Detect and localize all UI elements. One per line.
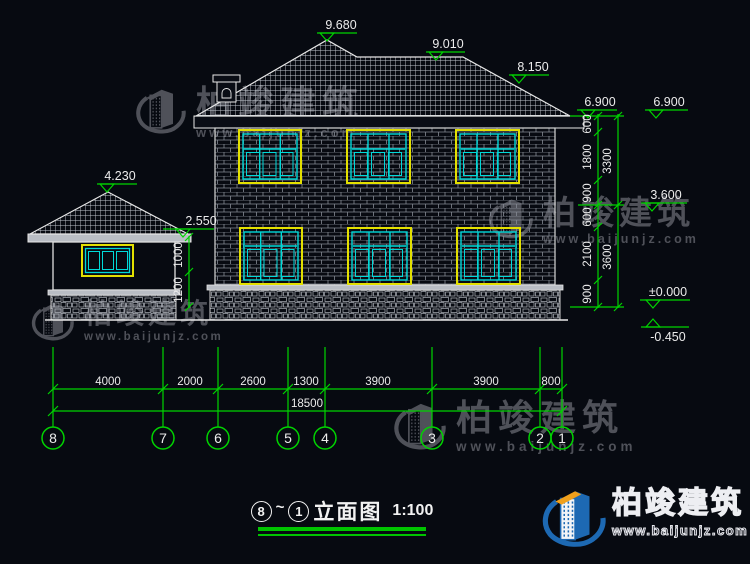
garage-dim-chain <box>185 233 193 311</box>
title-name: 立面图 <box>313 496 382 526</box>
cad-elevation-screenshot: 柏竣建筑 www.baijunjz.com 柏竣建筑 www.baijunjz.… <box>0 0 750 564</box>
grid-bubble-label: 7 <box>159 430 167 446</box>
dim-label: 900 <box>582 284 594 303</box>
dim-label: 3900 <box>365 376 391 388</box>
elevation-label: -0.450 <box>650 330 685 344</box>
dim-label: 1200 <box>173 277 185 303</box>
grid-bubbles <box>42 427 573 449</box>
drawing-title: 8 ~ 1 立面图 1:100 <box>254 496 430 526</box>
dim-label: 1300 <box>293 376 319 388</box>
dim-total-label: 3600 <box>602 244 614 270</box>
grid-bubble-label: 8 <box>49 430 57 446</box>
elevation-marker-ridge-low <box>509 75 549 83</box>
title-axis-start-bubble: 8 <box>251 501 272 522</box>
dim-label: 800 <box>541 376 560 388</box>
right-dim-chain <box>570 112 624 311</box>
garage <box>28 192 191 320</box>
dim-total-label: 3300 <box>602 148 614 174</box>
main-stone-foundation <box>210 290 560 320</box>
brand-website: www.baijunjz.com <box>612 523 748 538</box>
brand-company: 柏竣建筑 <box>612 487 748 522</box>
elevation-label: 2.550 <box>185 214 216 228</box>
dim-total-label: 18500 <box>291 398 323 410</box>
dim-label: 2000 <box>177 376 203 388</box>
title-tilde: ~ <box>276 499 285 516</box>
grid-bubble-label: 6 <box>214 430 222 446</box>
dim-label: 4000 <box>95 376 121 388</box>
elevation-label: 6.900 <box>584 95 615 109</box>
elevation-marker-minus450 <box>641 319 689 327</box>
garage-stone-foundation <box>51 295 176 320</box>
dim-label: 2600 <box>240 376 266 388</box>
elevation-marker-3600 <box>641 203 687 211</box>
elevation-marker-ridge-main <box>317 33 357 41</box>
title-underline-thick <box>258 527 426 531</box>
elevation-label: 9.680 <box>325 18 356 32</box>
grid-bubble-label: 3 <box>428 430 436 446</box>
dim-label: 2100 <box>582 241 594 267</box>
chimney <box>213 75 240 102</box>
elevation-label: 9.010 <box>432 37 463 51</box>
main-eave-fascia <box>194 116 584 128</box>
brand-building-icon <box>540 487 606 547</box>
elevation-drawing-canvas: 9.680 9.010 8.150 6.900 6.900 3.600 ±0.0… <box>0 0 750 564</box>
garage-roof <box>30 192 188 234</box>
elevation-marker-zero <box>640 300 690 308</box>
garage-plinth-ledge <box>48 290 180 295</box>
dim-label: 1000 <box>173 242 185 268</box>
elevation-label: 6.900 <box>653 95 684 109</box>
brand-logo: 柏竣建筑 www.baijunjz.com <box>540 487 748 547</box>
dim-label: 3900 <box>473 376 499 388</box>
elevation-marker-eave-right <box>645 110 688 118</box>
elevation-marker-garage-ridge <box>97 184 137 192</box>
dim-label: 900 <box>582 183 594 202</box>
title-scale: 1:100 <box>392 502 433 520</box>
main-house <box>194 40 584 320</box>
dim-label: 1800 <box>582 144 594 170</box>
grid-bubble-label: 5 <box>284 430 292 446</box>
title-underline-thin <box>258 534 426 536</box>
elevation-label: ±0.000 <box>649 285 687 299</box>
elevation-label: 8.150 <box>517 60 548 74</box>
garage-window <box>82 245 133 276</box>
title-axis-end-bubble: 1 <box>288 501 309 522</box>
grid-bubble-label: 1 <box>558 430 566 446</box>
elevation-label: 3.600 <box>650 188 681 202</box>
main-plinth-ledge <box>207 285 563 290</box>
elevation-label: 4.230 <box>104 169 135 183</box>
garage-eave-fascia <box>28 234 191 242</box>
grid-bubble-label: 2 <box>536 430 544 446</box>
grid-bubble-label: 4 <box>321 430 329 446</box>
dim-label: 600 <box>582 207 594 226</box>
dim-label: 600 <box>582 114 594 133</box>
